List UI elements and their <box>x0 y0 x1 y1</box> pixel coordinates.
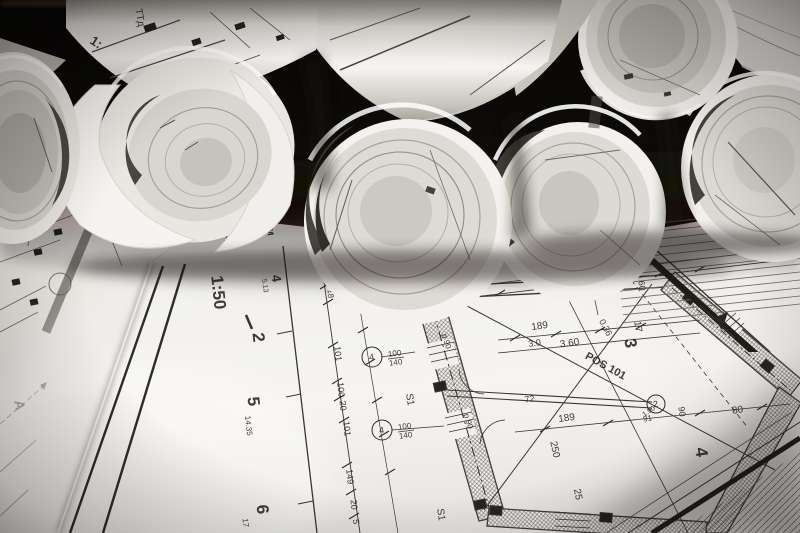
vignette-overlay <box>0 0 800 533</box>
blueprint-scene: A <box>0 0 800 533</box>
blueprint-photo: A <box>0 0 800 533</box>
